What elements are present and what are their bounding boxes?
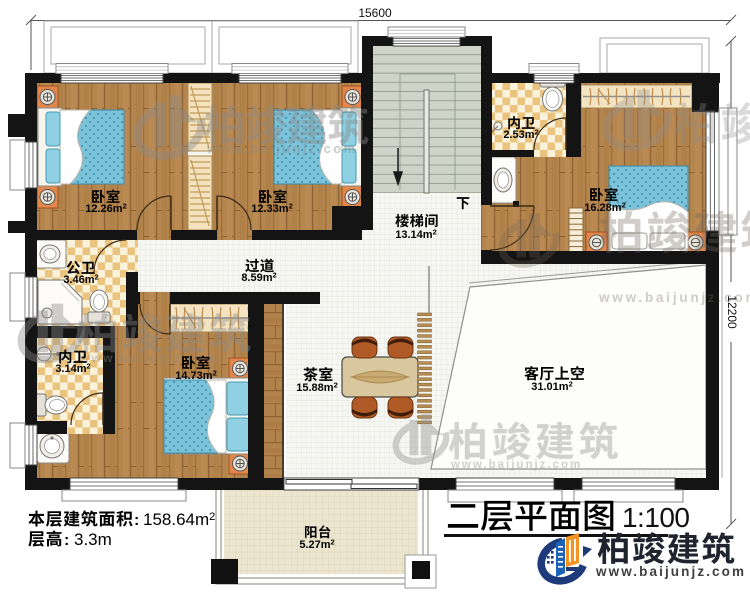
svg-text:16.28m2: 16.28m2 — [584, 201, 625, 215]
svg-text:13.14m2: 13.14m2 — [395, 228, 436, 242]
svg-text:www.baijunjz.com: www.baijunjz.com — [595, 564, 746, 579]
svg-text:3.14m2: 3.14m2 — [55, 362, 90, 376]
svg-text:www.baijunjz.com: www.baijunjz.com — [450, 459, 582, 471]
svg-text::: : — [134, 512, 139, 529]
svg-text::: : — [64, 532, 69, 549]
svg-text:www.baijunjz.com: www.baijunjz.com — [598, 290, 750, 305]
svg-text:3.46m2: 3.46m2 — [63, 273, 98, 287]
svg-text:1:100: 1:100 — [622, 502, 690, 533]
svg-text:3.3m: 3.3m — [74, 530, 112, 549]
svg-text:8.59m2: 8.59m2 — [241, 271, 276, 285]
svg-text:2.53m2: 2.53m2 — [503, 128, 538, 142]
svg-text:15.88m2: 15.88m2 — [296, 381, 337, 395]
svg-text:15600: 15600 — [358, 6, 392, 20]
svg-text:www.baijunjz.com: www.baijunjz.com — [206, 141, 358, 156]
svg-text:5.27m2: 5.27m2 — [299, 538, 334, 552]
svg-text:31.01m2: 31.01m2 — [531, 380, 572, 394]
svg-text:158.64m2: 158.64m2 — [143, 510, 215, 529]
svg-text:14.73m2: 14.73m2 — [175, 369, 216, 383]
svg-text:12.33m2: 12.33m2 — [251, 202, 292, 216]
svg-text:12.26m2: 12.26m2 — [85, 202, 126, 216]
